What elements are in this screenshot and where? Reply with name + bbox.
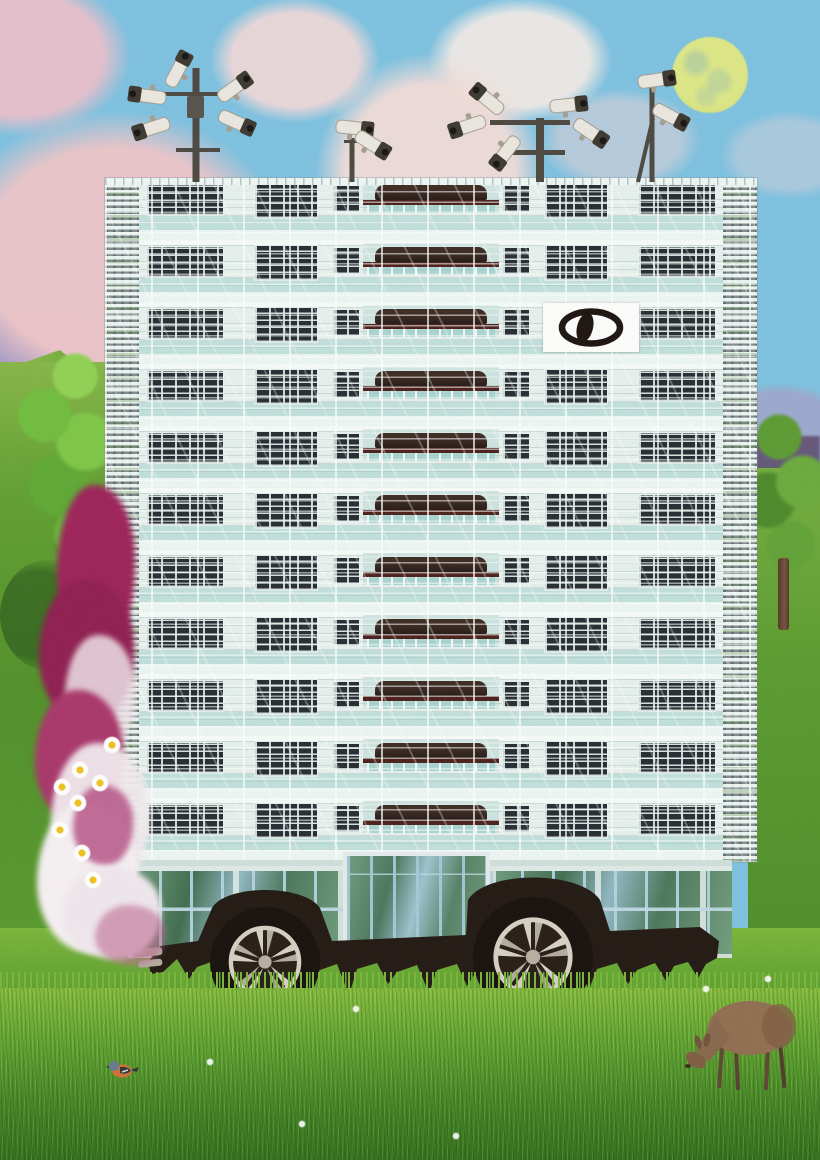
window-block — [255, 308, 317, 342]
lawn-flower-speck — [764, 975, 772, 983]
building-floor — [105, 612, 757, 674]
window-block — [503, 186, 529, 212]
collaged-car-band — [363, 491, 499, 523]
window-block — [639, 371, 715, 401]
window-block — [255, 804, 317, 838]
building-floors — [105, 178, 757, 862]
window-block — [147, 185, 223, 215]
window-block — [639, 309, 715, 339]
moon-icon — [672, 37, 748, 113]
collaged-car-band — [363, 367, 499, 399]
window-block — [255, 618, 317, 652]
collaged-car-band — [363, 677, 499, 709]
window-block — [333, 620, 359, 646]
glass-band — [367, 639, 495, 647]
window-block — [147, 805, 223, 835]
ground-floor-facade — [128, 860, 732, 958]
car-silhouette — [375, 495, 487, 510]
roof-railing — [105, 178, 757, 185]
window-block — [503, 682, 529, 708]
window-block — [255, 432, 317, 466]
window-block — [639, 185, 715, 215]
window-block — [639, 681, 715, 711]
eye-icon — [543, 303, 639, 352]
building-floor — [105, 240, 757, 302]
car-silhouette — [375, 185, 487, 200]
window-block — [639, 433, 715, 463]
lawn-flower-speck — [352, 1005, 360, 1013]
window-block — [503, 806, 529, 832]
window-block — [255, 680, 317, 714]
window-block — [333, 372, 359, 398]
daisy-icon — [69, 794, 87, 812]
window-block — [255, 742, 317, 776]
collaged-car-band — [363, 615, 499, 647]
window-block — [147, 743, 223, 773]
window-block — [639, 557, 715, 587]
window-block — [333, 434, 359, 460]
window-block — [545, 494, 607, 528]
car-silhouette — [375, 743, 487, 758]
window-block — [503, 372, 529, 398]
window-block — [639, 805, 715, 835]
window-block — [333, 806, 359, 832]
car-silhouette — [375, 309, 487, 324]
window-block — [545, 432, 607, 466]
window-block — [545, 184, 607, 218]
window-block — [147, 619, 223, 649]
window-block — [255, 184, 317, 218]
window-block — [545, 742, 607, 776]
building-floor — [105, 674, 757, 736]
daisy-icon — [71, 761, 89, 779]
window-block — [333, 682, 359, 708]
window-block — [545, 370, 607, 404]
window-block — [147, 309, 223, 339]
daisy-icon — [51, 821, 69, 839]
window-block — [503, 434, 529, 460]
window-block — [545, 804, 607, 838]
window-block — [503, 744, 529, 770]
window-block — [333, 310, 359, 336]
building-floor — [105, 798, 757, 860]
building-floor — [105, 736, 757, 798]
window-block — [255, 556, 317, 590]
glass-band — [367, 515, 495, 523]
car-silhouette — [375, 619, 487, 634]
car-silhouette — [375, 681, 487, 696]
glass-band — [367, 577, 495, 585]
building-floor — [105, 302, 757, 364]
car-silhouette — [375, 805, 487, 820]
window-block — [639, 495, 715, 525]
daisy-icon — [84, 871, 102, 889]
window-block — [333, 496, 359, 522]
building-floor — [105, 488, 757, 550]
window-block — [545, 246, 607, 280]
lawn-flower-speck — [702, 985, 710, 993]
glass-band — [367, 205, 495, 213]
window-block — [639, 247, 715, 277]
glass-band — [367, 267, 495, 275]
collaged-car-band — [363, 739, 499, 771]
window-block — [503, 310, 529, 336]
window-block — [333, 186, 359, 212]
building-floor — [105, 178, 757, 240]
window-block — [545, 618, 607, 652]
car-silhouette — [375, 557, 487, 572]
glass-band — [367, 825, 495, 833]
car-silhouette — [375, 433, 487, 448]
glass-band — [367, 763, 495, 771]
window-block — [503, 558, 529, 584]
scaffold-tower-right — [723, 178, 757, 862]
window-block — [147, 681, 223, 711]
window-block — [639, 619, 715, 649]
glass-band — [367, 391, 495, 399]
building-floor — [105, 550, 757, 612]
window-block — [147, 247, 223, 277]
window-block — [333, 248, 359, 274]
foreground-grass — [0, 988, 820, 1160]
window-block — [503, 248, 529, 274]
car-silhouette — [375, 247, 487, 262]
collaged-car-band — [363, 553, 499, 585]
entrance-portico — [343, 852, 490, 956]
ground-floor-wing-right — [490, 866, 732, 954]
lawn-flower-speck — [452, 1132, 460, 1140]
window-block — [545, 680, 607, 714]
window-block — [333, 558, 359, 584]
window-block — [503, 620, 529, 646]
car-silhouette — [375, 371, 487, 386]
window-block — [147, 557, 223, 587]
building-floor — [105, 364, 757, 426]
eye-logo — [543, 303, 639, 352]
window-block — [255, 370, 317, 404]
window-block — [255, 494, 317, 528]
collaged-car-band — [363, 305, 499, 337]
collaged-car-band — [363, 181, 499, 213]
lawn-flower-speck — [206, 1058, 214, 1066]
daisy-icon — [103, 736, 121, 754]
window-block — [255, 246, 317, 280]
window-block — [147, 371, 223, 401]
daisy-icon — [73, 844, 91, 862]
collaged-car-band — [363, 243, 499, 275]
daisy-icon — [91, 774, 109, 792]
flower-cascade — [35, 485, 150, 960]
collaged-car-band — [363, 801, 499, 833]
window-block — [639, 743, 715, 773]
building-floor — [105, 426, 757, 488]
window-block — [333, 744, 359, 770]
window-block — [147, 495, 223, 525]
lawn-flower-speck — [298, 1120, 306, 1128]
glass-band — [367, 329, 495, 337]
tower-block — [105, 178, 757, 862]
window-block — [147, 433, 223, 463]
flower-blob — [95, 905, 165, 965]
collaged-car-band — [363, 429, 499, 461]
tree-trunk — [778, 558, 789, 630]
glass-band — [367, 453, 495, 461]
window-block — [503, 496, 529, 522]
glass-band — [367, 701, 495, 709]
collage-artwork — [0, 0, 820, 1160]
window-block — [545, 556, 607, 590]
